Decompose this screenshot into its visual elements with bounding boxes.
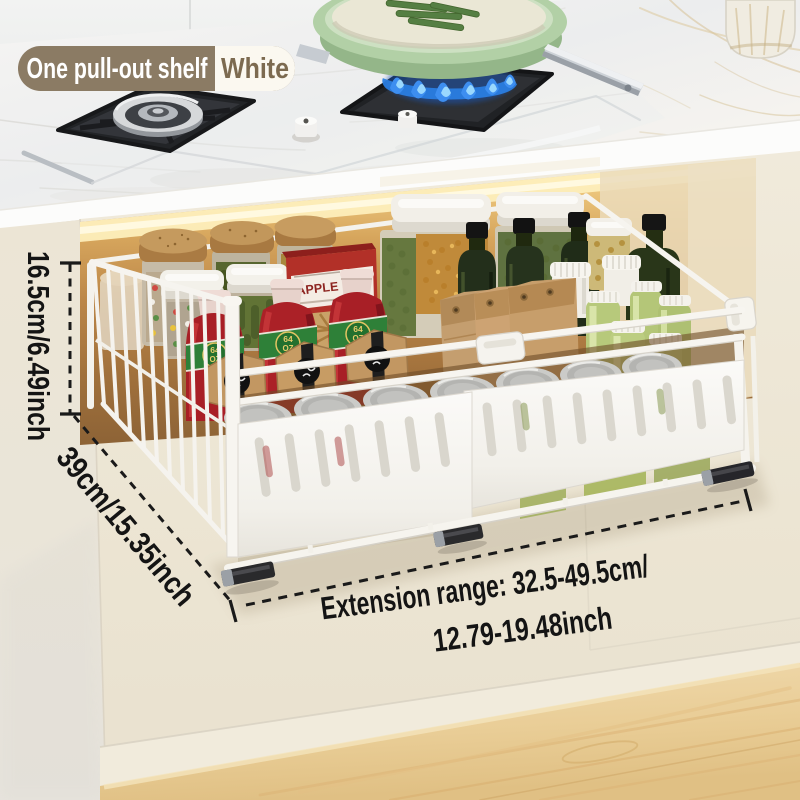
svg-text:White: White xyxy=(221,53,289,85)
svg-text:64: 64 xyxy=(353,324,363,334)
svg-text:One pull-out shelf: One pull-out shelf xyxy=(27,53,208,85)
svg-text:16.5cm/6.49inch: 16.5cm/6.49inch xyxy=(21,251,56,441)
svg-text:64: 64 xyxy=(283,334,293,344)
